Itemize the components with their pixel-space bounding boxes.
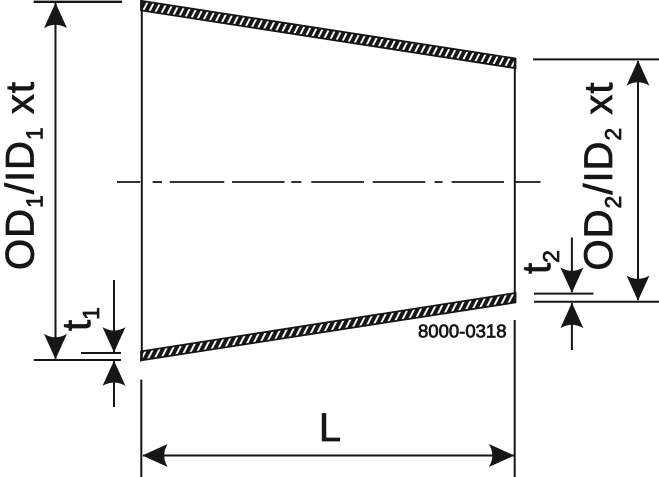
svg-text:8000-0318: 8000-0318 [418, 321, 506, 342]
svg-text:L: L [319, 406, 341, 450]
svg-text:OD1/ID1 xt: OD1/ID1 xt [0, 81, 48, 270]
svg-text:OD2/ID2 xt: OD2/ID2 xt [577, 82, 626, 271]
